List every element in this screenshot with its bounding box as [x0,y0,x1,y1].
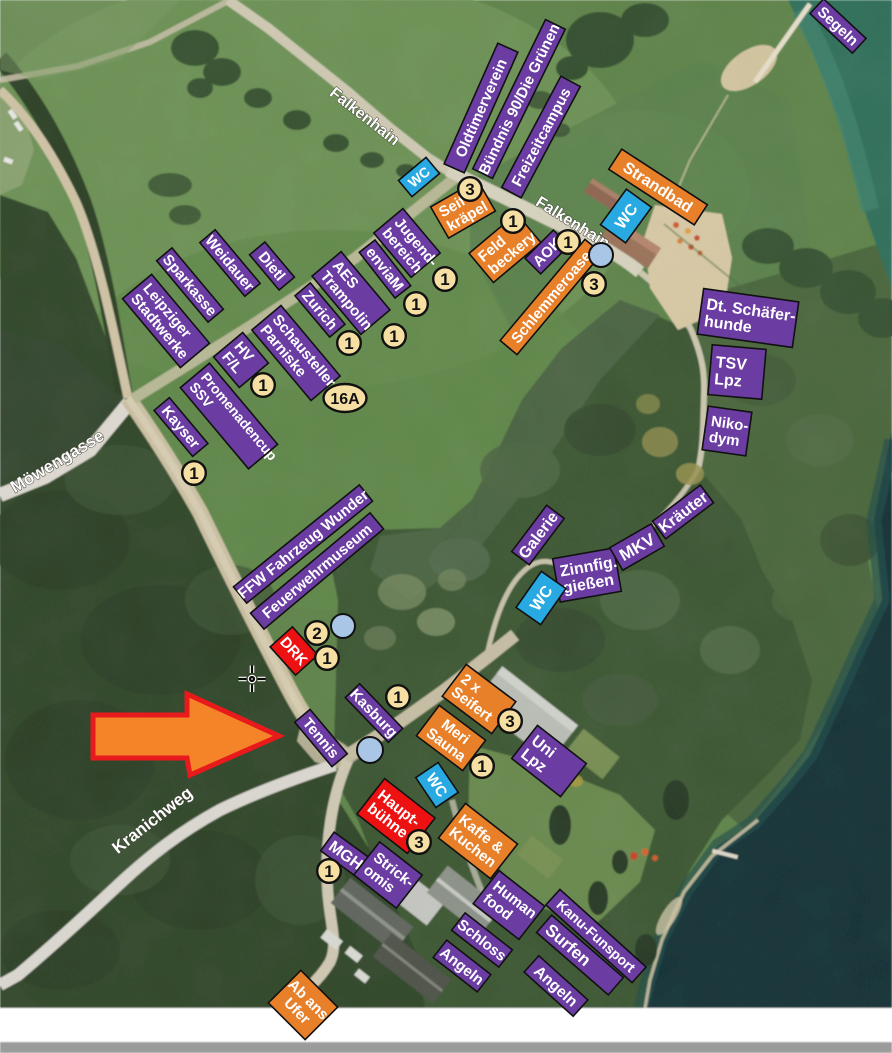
svg-text:1: 1 [389,327,398,346]
svg-text:3: 3 [465,180,474,199]
svg-text:1: 1 [563,233,572,252]
svg-text:1: 1 [322,649,331,668]
svg-text:16A: 16A [330,391,360,408]
svg-text:3: 3 [505,712,514,731]
svg-text:1: 1 [344,334,353,353]
svg-text:1: 1 [324,862,333,881]
svg-text:1: 1 [477,757,486,776]
svg-text:Lpz: Lpz [714,371,743,390]
svg-text:3: 3 [589,275,598,294]
svg-text:3: 3 [414,833,423,852]
svg-text:1: 1 [258,376,267,395]
svg-text:1: 1 [189,464,198,483]
svg-text:1: 1 [393,688,402,707]
svg-text:1: 1 [411,295,420,314]
svg-text:1: 1 [508,212,517,231]
svg-text:1: 1 [440,270,449,289]
svg-text:2: 2 [312,624,321,643]
